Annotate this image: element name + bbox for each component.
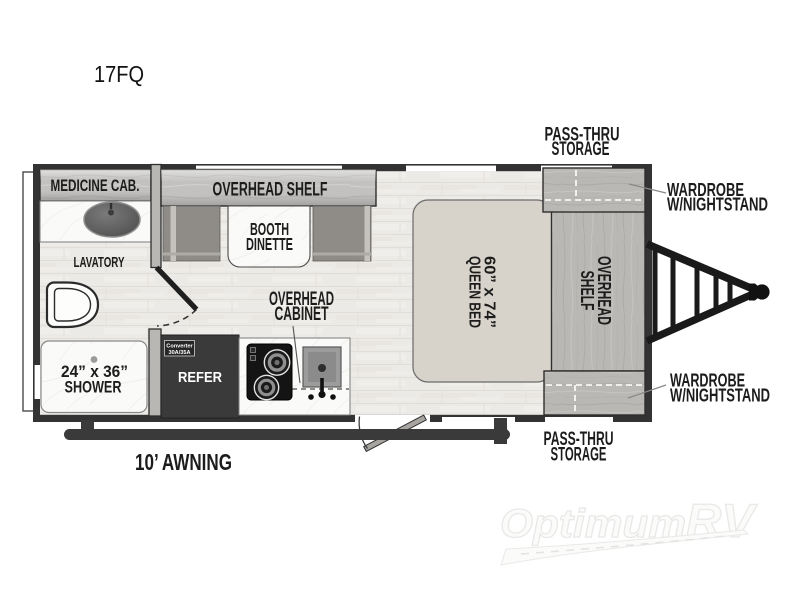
svg-text:OVERHEAD SHELF: OVERHEAD SHELF bbox=[213, 180, 328, 201]
svg-text:SHELF: SHELF bbox=[577, 271, 597, 311]
svg-text:DINETTE: DINETTE bbox=[246, 234, 293, 254]
svg-text:10’ AWNING: 10’ AWNING bbox=[135, 449, 232, 475]
svg-text:STORAGE: STORAGE bbox=[552, 139, 610, 160]
svg-text:17FQ: 17FQ bbox=[94, 61, 144, 87]
svg-text:CABINET: CABINET bbox=[275, 304, 329, 325]
svg-text:30A/35A: 30A/35A bbox=[168, 350, 190, 356]
svg-text:SHOWER: SHOWER bbox=[65, 378, 122, 397]
svg-text:QUEEN BED: QUEEN BED bbox=[466, 256, 483, 328]
svg-text:STORAGE: STORAGE bbox=[551, 445, 607, 466]
svg-text:W/NIGHTSTAND: W/NIGHTSTAND bbox=[670, 385, 770, 406]
svg-text:LAVATORY: LAVATORY bbox=[74, 254, 125, 271]
svg-text:MEDICINE CAB.: MEDICINE CAB. bbox=[51, 176, 140, 195]
svg-text:REFER: REFER bbox=[178, 369, 222, 386]
svg-text:W/NIGHTSTAND: W/NIGHTSTAND bbox=[667, 194, 768, 215]
svg-text:Converter: Converter bbox=[166, 344, 193, 350]
